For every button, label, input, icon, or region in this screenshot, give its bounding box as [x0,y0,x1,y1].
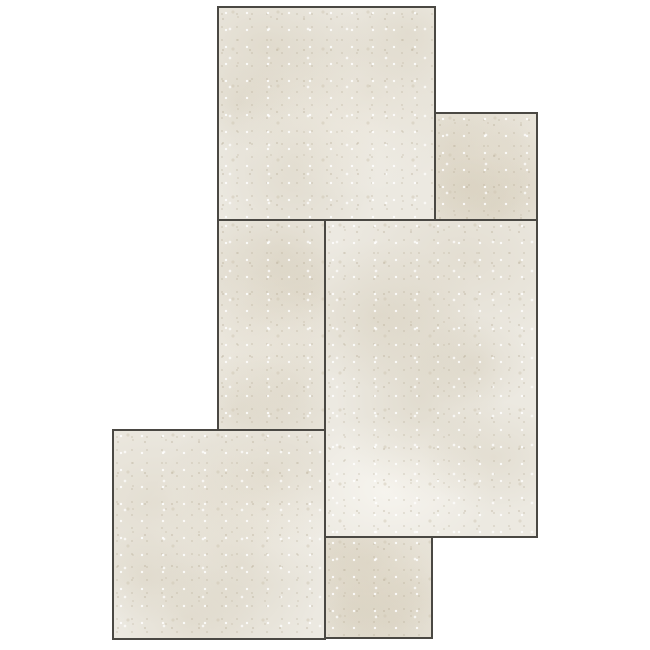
tile-rectangle-middle-left [217,219,326,431]
tile-large-rectangle-middle-right [324,219,538,538]
tile-layout-canvas [0,0,650,650]
tile-large-square-bottom-left [112,429,326,640]
tile-small-square-bottom [324,536,433,639]
tile-small-square-top-right [434,112,538,221]
tile-large-square-top [217,6,436,221]
